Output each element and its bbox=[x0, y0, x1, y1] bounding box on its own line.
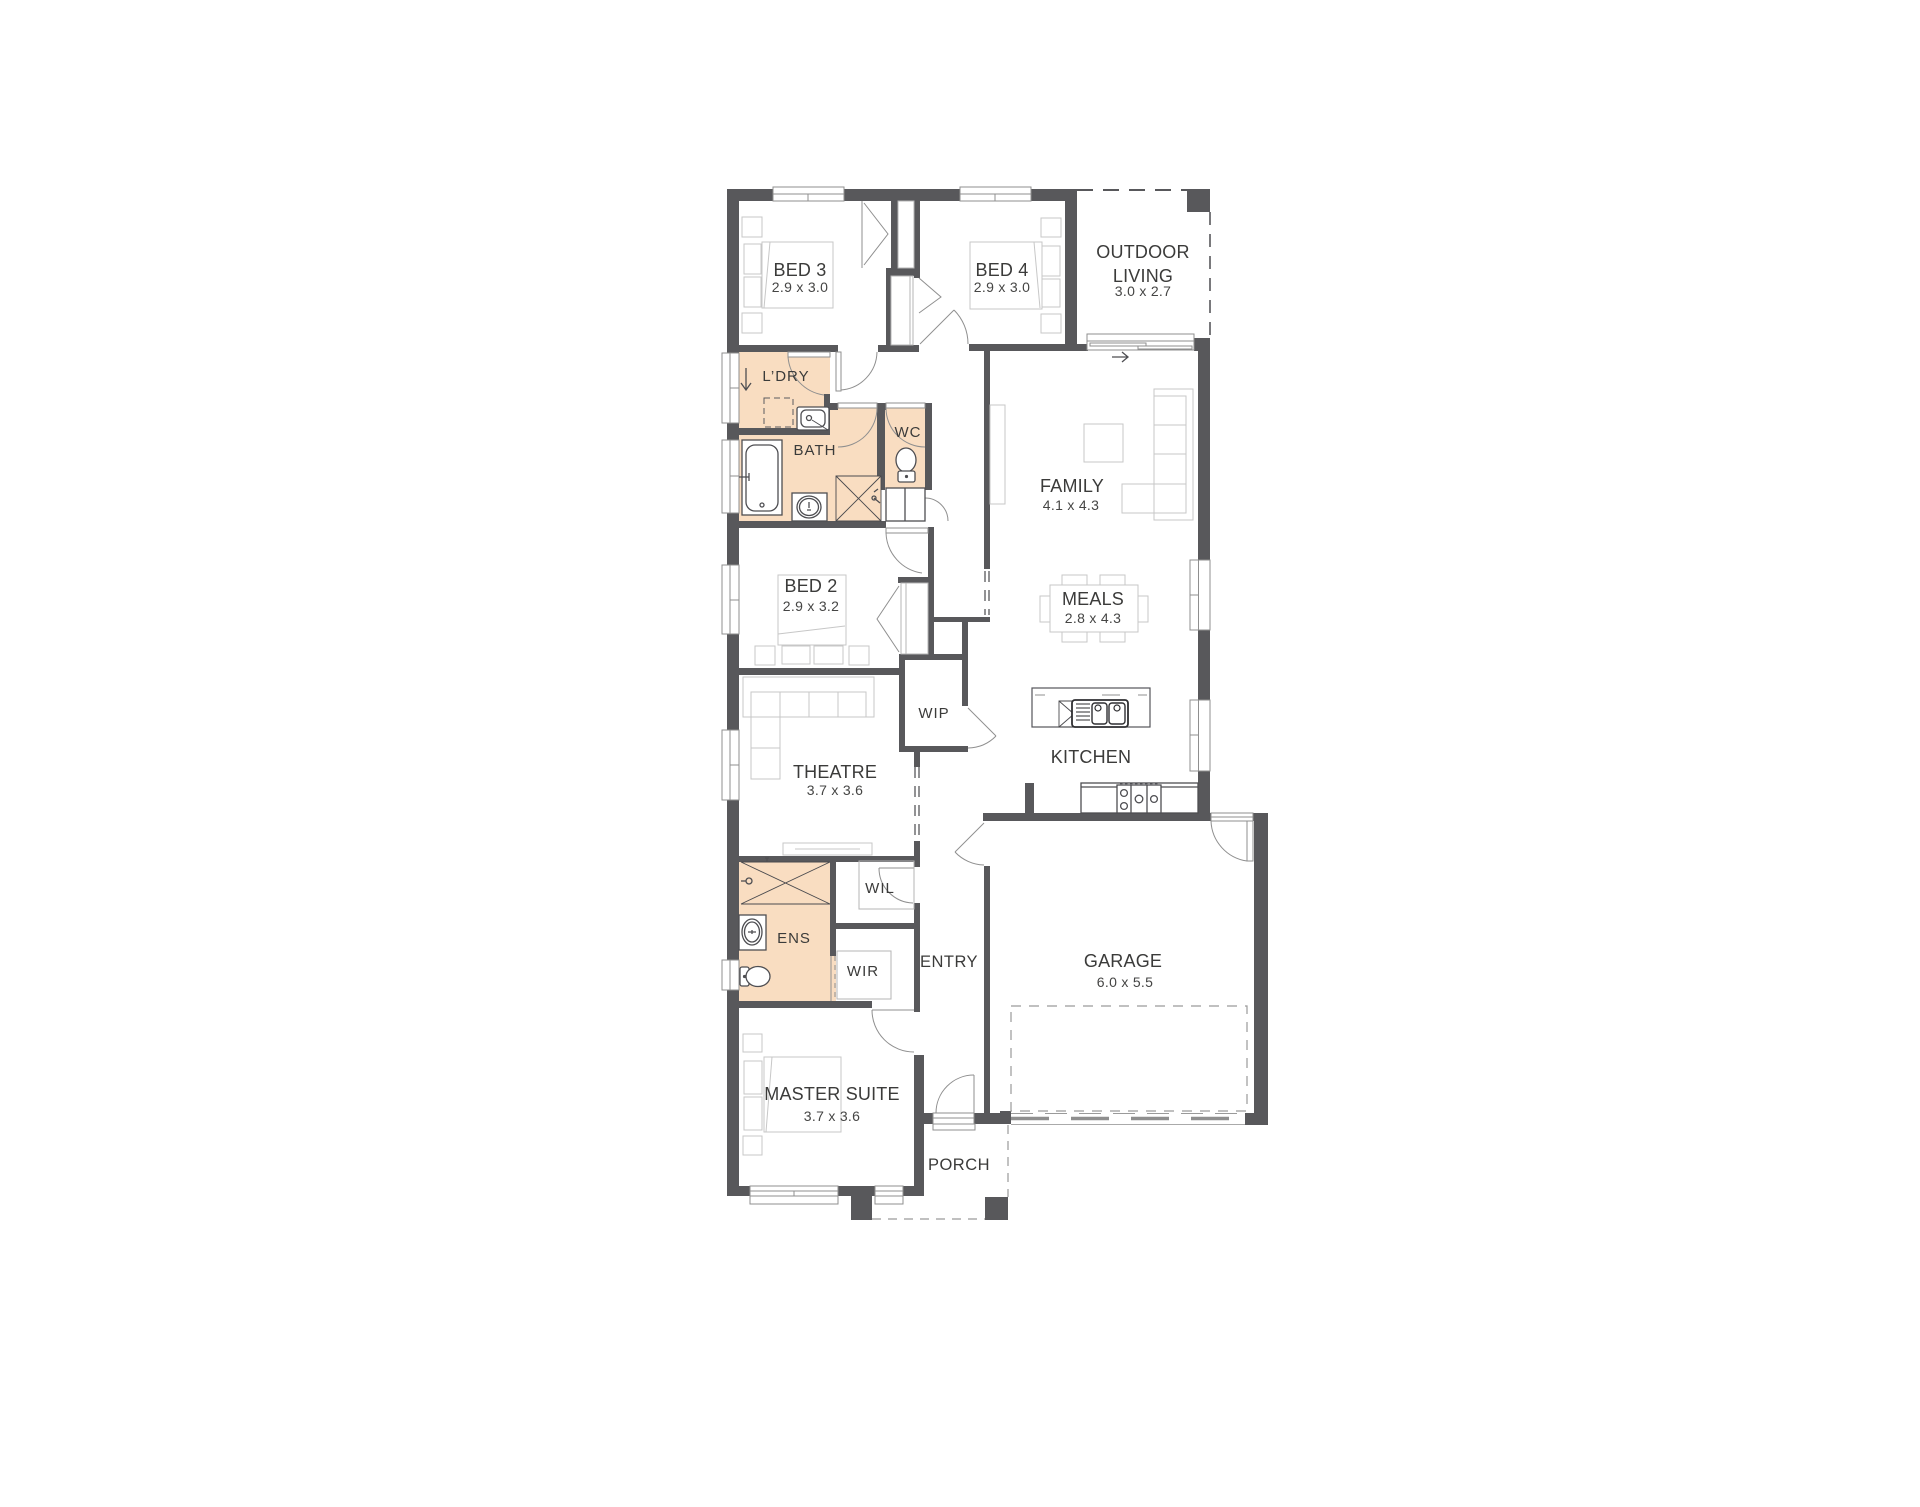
svg-text:THEATRE: THEATRE bbox=[793, 762, 877, 782]
svg-text:WC: WC bbox=[895, 424, 922, 441]
svg-text:BED 3: BED 3 bbox=[773, 260, 826, 280]
svg-text:GARAGE: GARAGE bbox=[1084, 951, 1162, 971]
svg-text:PORCH: PORCH bbox=[928, 1156, 990, 1174]
svg-text:BED 4: BED 4 bbox=[975, 260, 1028, 280]
svg-text:ENTRY: ENTRY bbox=[920, 953, 978, 971]
svg-text:MEALS: MEALS bbox=[1062, 589, 1124, 609]
svg-text:WIR: WIR bbox=[847, 963, 879, 980]
svg-text:3.7 x 3.6: 3.7 x 3.6 bbox=[804, 1108, 860, 1124]
svg-text:BATH: BATH bbox=[794, 442, 837, 459]
svg-text:2.9 x 3.0: 2.9 x 3.0 bbox=[772, 279, 828, 295]
svg-text:2.8 x 4.3: 2.8 x 4.3 bbox=[1065, 610, 1121, 626]
svg-text:3.0 x 2.7: 3.0 x 2.7 bbox=[1115, 283, 1171, 299]
svg-text:2.9 x 3.0: 2.9 x 3.0 bbox=[974, 279, 1030, 295]
svg-text:WIL: WIL bbox=[865, 880, 895, 897]
svg-text:2.9 x 3.2: 2.9 x 3.2 bbox=[783, 598, 839, 614]
svg-text:4.1 x 4.3: 4.1 x 4.3 bbox=[1043, 497, 1099, 513]
svg-text:WIP: WIP bbox=[918, 705, 949, 722]
svg-text:3.7 x 3.6: 3.7 x 3.6 bbox=[807, 782, 863, 798]
svg-text:OUTDOOR: OUTDOOR bbox=[1096, 242, 1189, 262]
svg-text:6.0 x 5.5: 6.0 x 5.5 bbox=[1097, 974, 1153, 990]
svg-text:FAMILY: FAMILY bbox=[1040, 476, 1104, 496]
svg-text:L’DRY: L’DRY bbox=[762, 368, 809, 385]
svg-text:KITCHEN: KITCHEN bbox=[1051, 747, 1131, 767]
svg-text:ENS: ENS bbox=[777, 930, 811, 947]
svg-text:MASTER SUITE: MASTER SUITE bbox=[764, 1084, 899, 1104]
svg-text:BED 2: BED 2 bbox=[784, 576, 837, 596]
